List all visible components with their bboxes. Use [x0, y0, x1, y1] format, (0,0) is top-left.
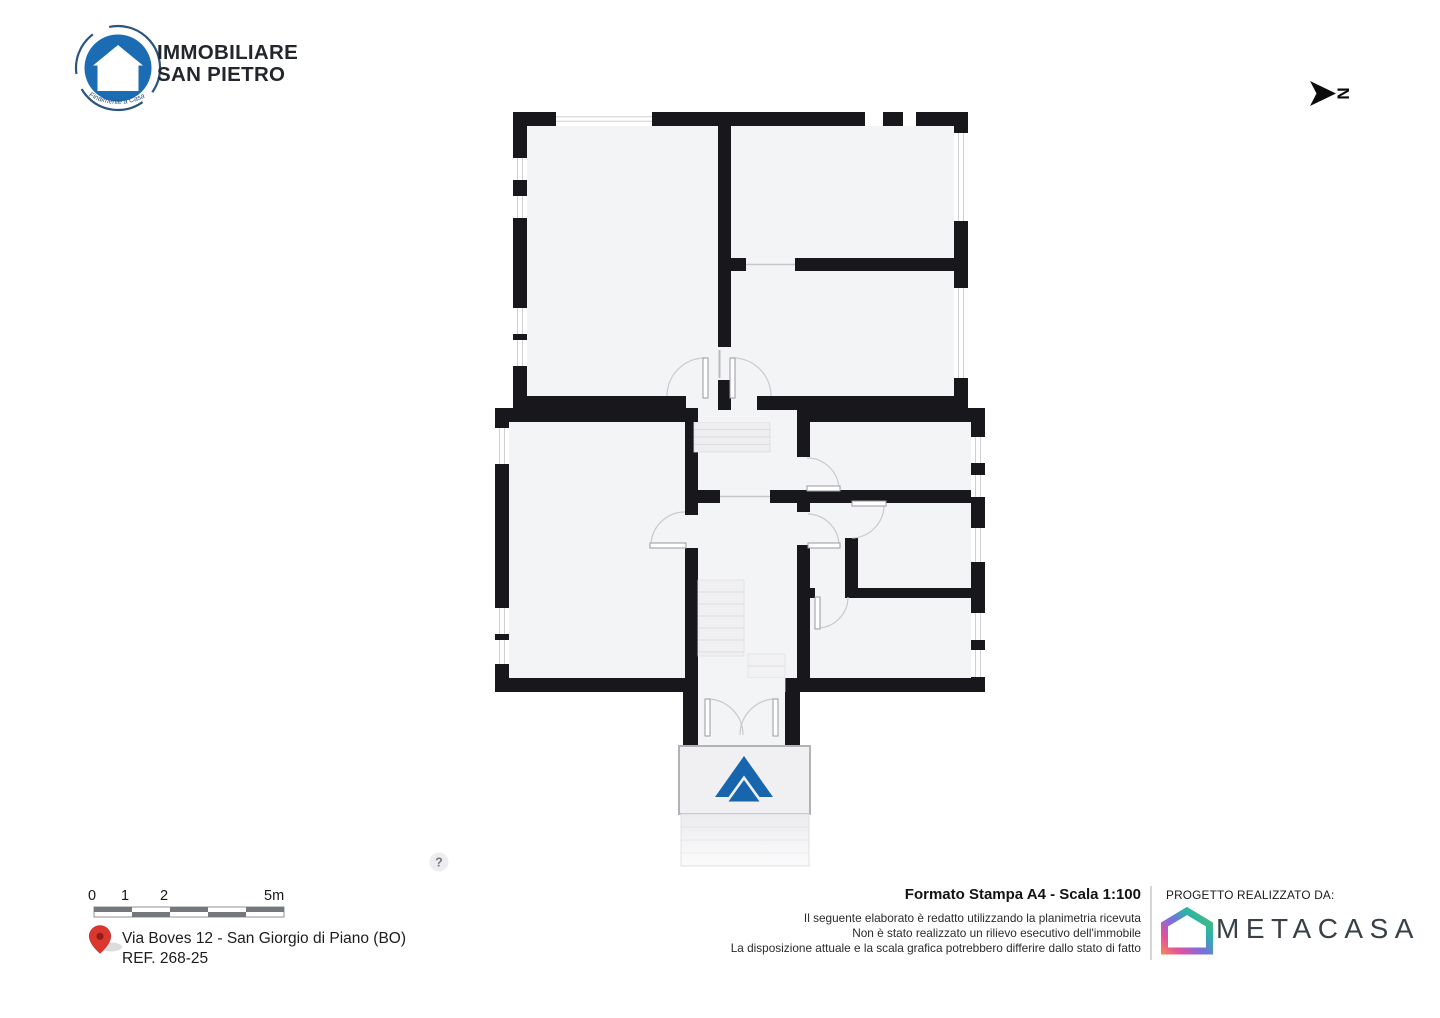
- property-address: Via Boves 12 - San Giorgio di Piano (BO)…: [122, 929, 406, 968]
- scale-label-1: 1: [121, 888, 129, 904]
- middle-block: [495, 408, 985, 694]
- credits-label: PROGETTO REALIZZATO DA:: [1166, 888, 1334, 902]
- help-icon-glyph: ?: [435, 856, 443, 870]
- scale-label-0: 0: [88, 888, 96, 904]
- disclaimer-line: Il seguente elaborato è redatto utilizza…: [581, 911, 1141, 926]
- north-label: N: [1334, 87, 1353, 99]
- entrance-area: [679, 678, 810, 866]
- floor-plan-graphic: N Finalmente a Casa ?: [0, 0, 1440, 1018]
- floorplan-page: { "branding": { "name_line1": "IMMOBILIA…: [0, 0, 1440, 1018]
- print-info: Formato Stampa A4 - Scala 1:100 Il segue…: [581, 886, 1141, 956]
- help-icon[interactable]: ?: [430, 853, 449, 872]
- disclaimer-line: La disposizione attuale e la scala grafi…: [581, 941, 1141, 956]
- address-line: Via Boves 12 - San Giorgio di Piano (BO): [122, 929, 406, 949]
- scale-label-5m: 5m: [264, 888, 284, 904]
- scale-bar: [94, 907, 284, 917]
- north-arrow-icon: N: [1310, 81, 1353, 106]
- print-format-title: Formato Stampa A4 - Scala 1:100: [581, 886, 1141, 903]
- metacasa-wordmark: METACASA: [1216, 913, 1420, 945]
- scale-label-2: 2: [160, 888, 168, 904]
- upper-block: [513, 112, 968, 410]
- entrance-steps: [681, 814, 809, 866]
- agency-name-line2: SAN PIETRO: [157, 64, 298, 86]
- agency-logo-text: IMMOBILIARE SAN PIETRO: [157, 42, 298, 86]
- reference-number: REF. 268-25: [122, 949, 406, 969]
- agency-name-line1: IMMOBILIARE: [157, 42, 298, 64]
- footer-divider: [1150, 886, 1152, 960]
- disclaimer-line: Non è stato realizzato un rilievo esecut…: [581, 926, 1141, 941]
- location-pin-icon: [89, 926, 122, 954]
- porch: [679, 746, 810, 814]
- floor-plan: [495, 112, 985, 866]
- metacasa-logo-icon: [1165, 911, 1210, 951]
